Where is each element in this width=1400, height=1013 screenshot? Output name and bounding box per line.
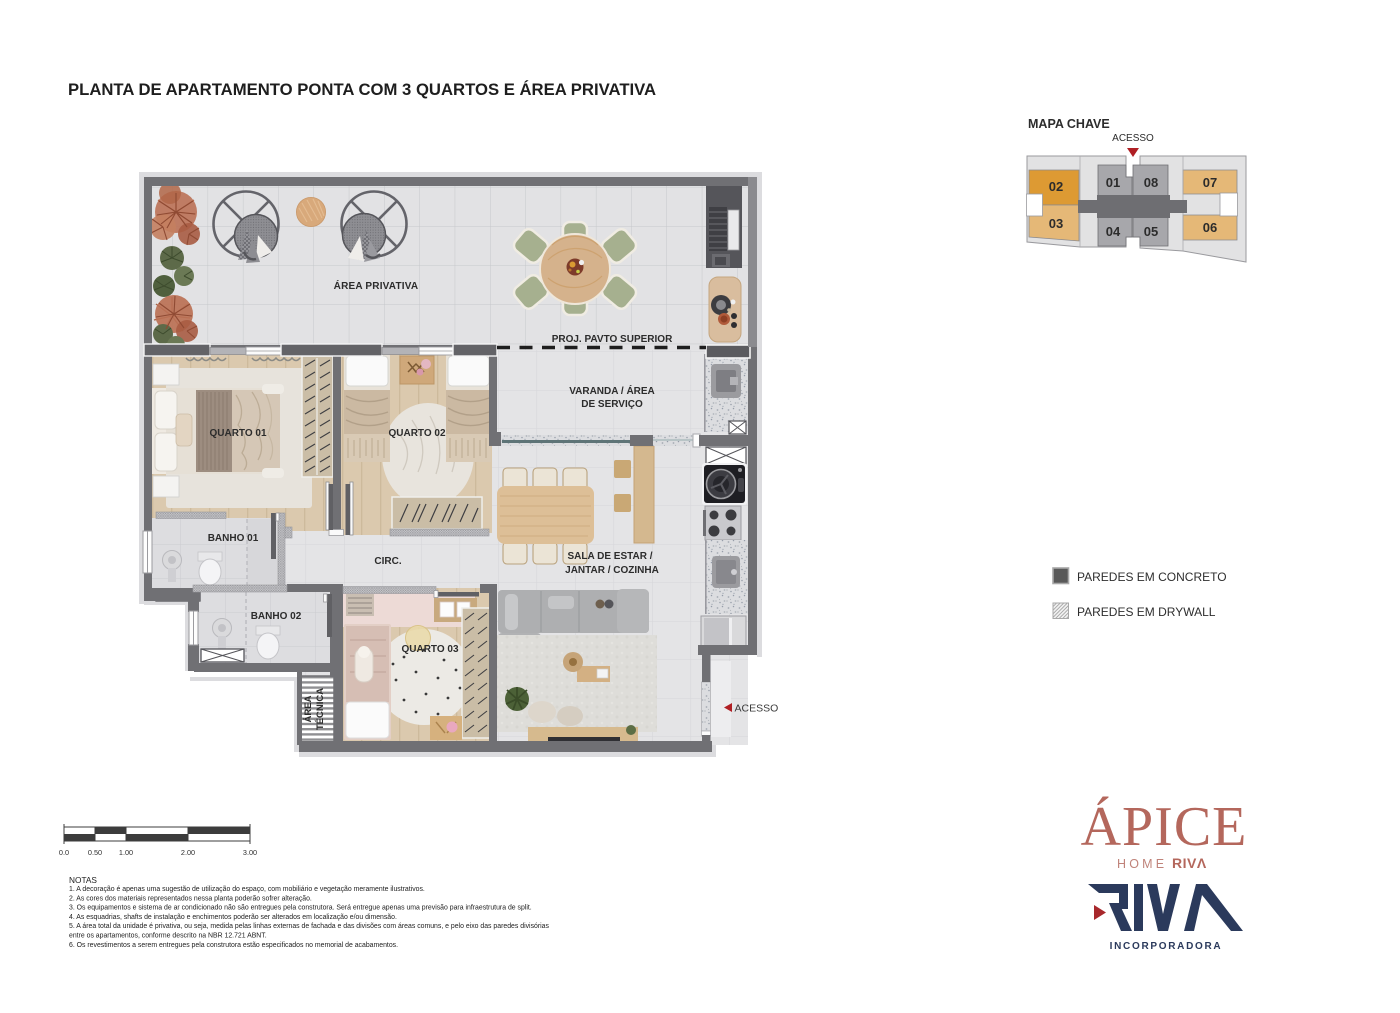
svg-text:0.0: 0.0 — [59, 848, 69, 857]
svg-text:1.00: 1.00 — [119, 848, 133, 857]
svg-text:BANHO 02: BANHO 02 — [251, 611, 302, 622]
svg-text:ACESSO: ACESSO — [735, 703, 779, 715]
svg-text:CIRC.: CIRC. — [374, 556, 401, 567]
svg-text:07: 07 — [1203, 175, 1217, 190]
svg-text:QUARTO 01: QUARTO 01 — [209, 428, 266, 439]
svg-text:6. Os revestimentos a serem en: 6. Os revestimentos a serem entregues pe… — [69, 942, 398, 949]
svg-text:PAREDES EM DRYWALL: PAREDES EM DRYWALL — [1077, 605, 1216, 619]
svg-text:PROJ. PAVTO SUPERIOR: PROJ. PAVTO SUPERIOR — [552, 334, 673, 345]
svg-text:JANTAR / COZINHA: JANTAR / COZINHA — [565, 565, 659, 576]
svg-text:3.00: 3.00 — [243, 848, 257, 857]
svg-text:QUARTO 02: QUARTO 02 — [388, 428, 445, 439]
svg-text:06: 06 — [1203, 220, 1217, 235]
svg-text:3. Os equipamentos e sistema d: 3. Os equipamentos e sistema de ar condi… — [69, 905, 532, 912]
svg-text:PLANTA DE APARTAMENTO PONTA CO: PLANTA DE APARTAMENTO PONTA COM 3 QUARTO… — [68, 80, 656, 99]
svg-text:ÁPICE: ÁPICE — [1081, 796, 1248, 858]
svg-text:01: 01 — [1106, 175, 1120, 190]
svg-text:INCORPORADORA: INCORPORADORA — [1110, 941, 1223, 952]
svg-text:4. As esquadrias, shafts de in: 4. As esquadrias, shafts de instalação e… — [69, 914, 397, 921]
svg-text:MAPA CHAVE: MAPA CHAVE — [1028, 117, 1110, 131]
svg-text:02: 02 — [1049, 179, 1063, 194]
svg-text:SALA DE ESTAR /: SALA DE ESTAR / — [567, 551, 652, 562]
svg-text:ÁREA: ÁREA — [303, 695, 314, 722]
svg-text:NOTAS: NOTAS — [69, 875, 97, 885]
svg-text:1. A decoração é apenas uma su: 1. A decoração é apenas uma sugestão de … — [69, 886, 425, 893]
svg-text:ACESSO: ACESSO — [1112, 133, 1154, 144]
svg-text:BANHO 01: BANHO 01 — [208, 533, 259, 544]
svg-text:0.50: 0.50 — [88, 848, 102, 857]
svg-text:VARANDA / ÁREA: VARANDA / ÁREA — [569, 384, 655, 397]
svg-text:QUARTO 03: QUARTO 03 — [401, 644, 458, 655]
svg-text:08: 08 — [1144, 175, 1158, 190]
svg-text:RIVΛ: RIVΛ — [1172, 855, 1207, 871]
svg-text:PAREDES EM CONCRETO: PAREDES EM CONCRETO — [1077, 570, 1227, 584]
svg-text:2. As cores dos materiais repr: 2. As cores dos materiais representados … — [69, 895, 312, 902]
svg-text:TÉCNICA: TÉCNICA — [315, 688, 326, 730]
svg-text:2.00: 2.00 — [181, 848, 195, 857]
svg-text:entre os apartamentos, conform: entre os apartamentos, conforme descrito… — [69, 933, 267, 940]
svg-text:5. A área total da unidade é p: 5. A área total da unidade é privativa, … — [69, 923, 550, 930]
svg-text:ÁREA PRIVATIVA: ÁREA PRIVATIVA — [334, 279, 419, 292]
svg-text:04: 04 — [1106, 224, 1121, 239]
svg-text:05: 05 — [1144, 224, 1158, 239]
svg-text:HOME: HOME — [1117, 857, 1167, 871]
svg-text:DE SERVIÇO: DE SERVIÇO — [581, 399, 643, 410]
svg-text:03: 03 — [1049, 216, 1063, 231]
